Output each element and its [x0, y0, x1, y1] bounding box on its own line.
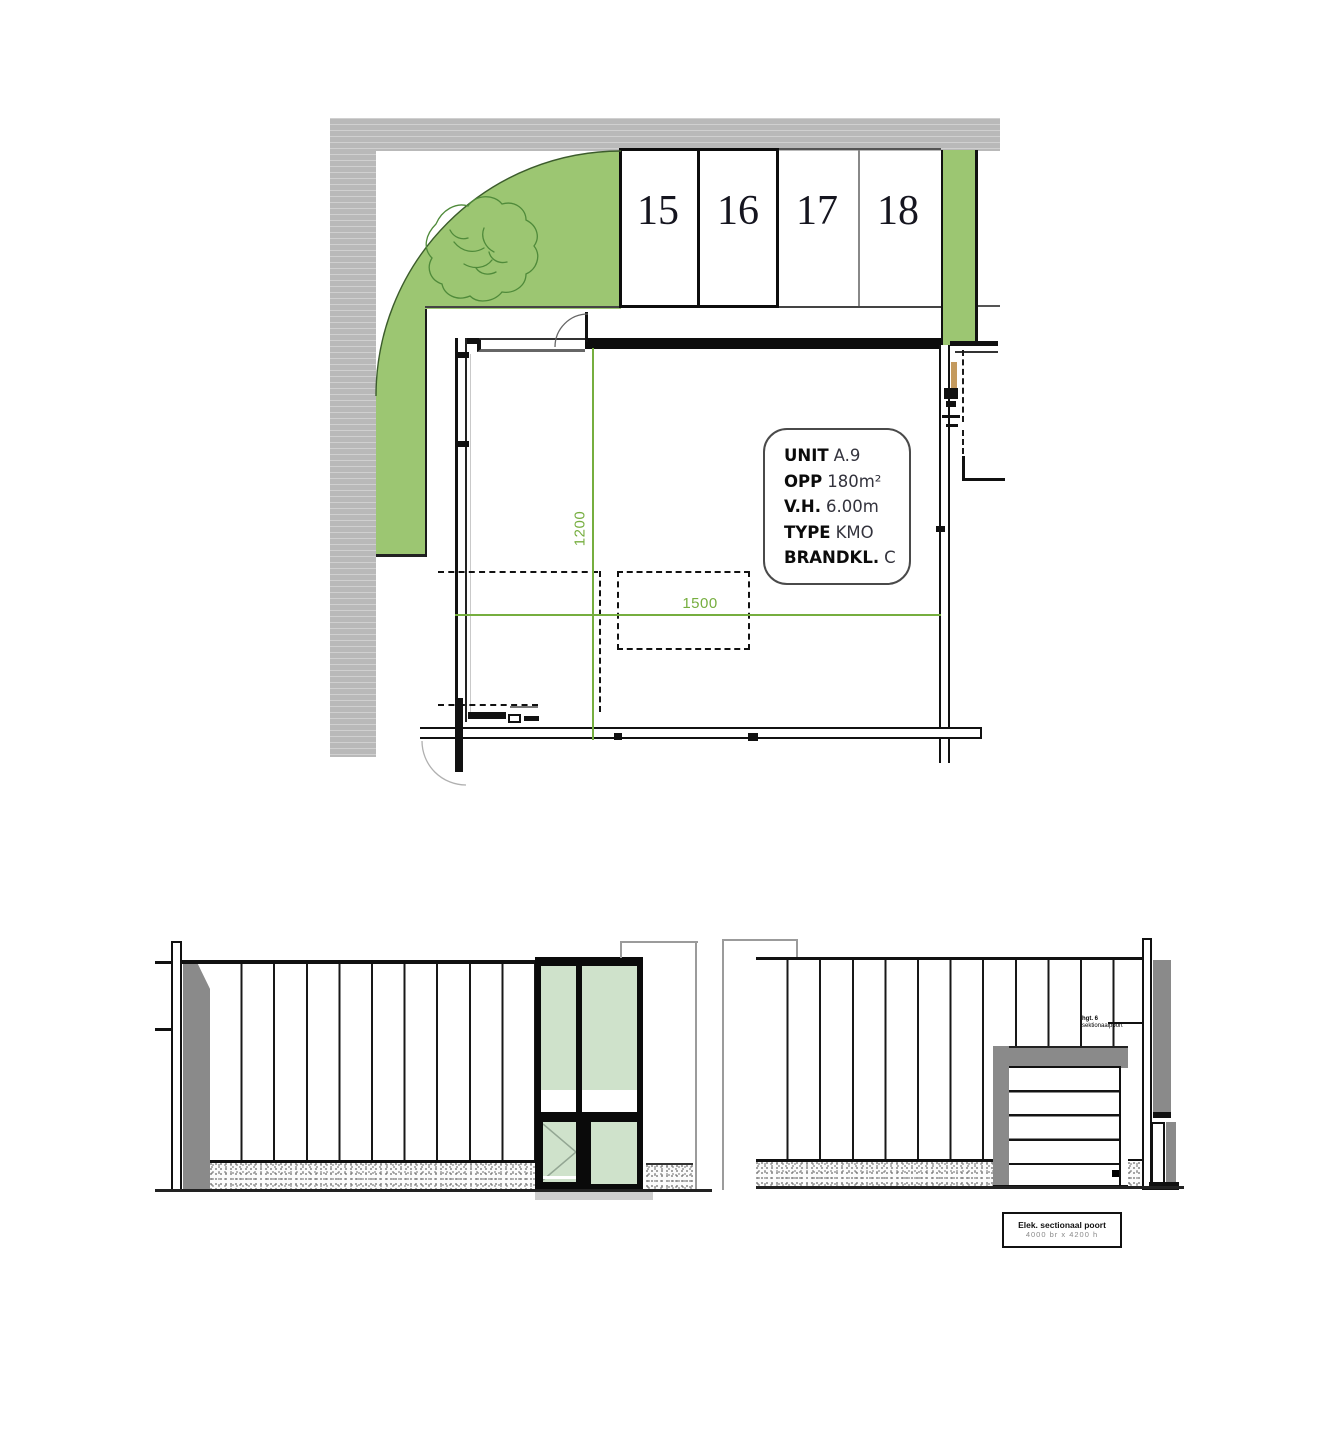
door-annotation-leader: [1108, 1022, 1146, 1024]
dashed-interior-v: [599, 571, 601, 712]
elev2-parapet-outline-h: [722, 939, 798, 941]
info-row-opp: OPP180m²: [784, 469, 909, 495]
info-row-unit: UNITA.9: [784, 443, 909, 469]
wall-bottom-tick-1: [614, 733, 622, 740]
elev1-cladding-panels: [210, 964, 536, 1162]
info-row-vh: V.H.6.00m: [784, 494, 909, 520]
sectional-door-header: [993, 1046, 1128, 1068]
parking-number-16: 16: [700, 188, 776, 234]
bay-glass-top-left: [541, 966, 576, 1090]
wall-left-tick-2: [458, 441, 469, 447]
dimension-label-horizontal: 1500: [676, 595, 724, 612]
elev1-dark-panel: [183, 964, 210, 1190]
wall-left-lower: [455, 698, 463, 772]
parking-number-18: 18: [858, 188, 938, 234]
dashed-line-right-1: [962, 350, 964, 422]
wall-left-inner-line: [470, 354, 471, 716]
wall-top: [584, 338, 941, 349]
dimension-line-vertical: [592, 348, 594, 740]
landscape-green-strip-right: [941, 150, 978, 345]
sectional-door-slats: [1009, 1066, 1121, 1189]
door-leaf-plan: [585, 312, 588, 342]
roller-door-plan: [477, 338, 585, 352]
wall-bottom-tick-2: [748, 733, 758, 741]
parking-top-line-17-18: [779, 148, 941, 150]
sectional-door-handle: [1112, 1170, 1119, 1177]
elev2-gravel-strip: [756, 1162, 996, 1188]
site-line-a: [978, 305, 1000, 307]
detail-l-horizontal: [962, 478, 1005, 481]
bay-door-glass: [543, 1122, 576, 1182]
unit-info-box: UNITA.9 OPP180m² V.H.6.00m TYPEKMO BRAND…: [763, 428, 911, 585]
detail-bracket-1: [944, 388, 958, 399]
dashed-line-right-2: [962, 430, 964, 454]
wall-right-tick: [936, 526, 945, 532]
landscape-green-bottom-edge: [376, 554, 427, 557]
elev1-gravel-strip-2: [646, 1165, 693, 1189]
elev2-parapet-outline-v1: [722, 939, 724, 1190]
elev2-lower-dark-sliver: [1166, 1122, 1176, 1188]
elev2-dark-panel: [1153, 960, 1171, 1117]
bay-transom-right: [582, 1090, 637, 1112]
elev1-parapet-outline-h: [620, 941, 698, 943]
dashed-interior-h1: [438, 571, 598, 573]
elev2-ground-line: [756, 1186, 1184, 1189]
door-hardware-box: [508, 714, 521, 723]
wall-left-tick-1: [458, 352, 469, 358]
wall-bottom: [420, 727, 982, 739]
elev1-parapet-outline-v1: [620, 941, 622, 958]
wall-left: [455, 338, 467, 722]
dashed-interior-h2: [438, 704, 538, 706]
architectural-drawing: 15 16 17 18 1200 1500: [0, 0, 1317, 1440]
door-label-box: Elek. sectionaal poort 4000 br x 4200 h: [1002, 1212, 1122, 1248]
door-label-line1: Elek. sectionaal poort: [1004, 1220, 1120, 1230]
detail-bracket-2: [946, 401, 956, 407]
elev2-lower-frame: [1151, 1122, 1165, 1188]
elev1-gravel-strip: [210, 1163, 536, 1189]
elev2-sectional-door: [993, 1046, 1128, 1189]
parking-number-17: 17: [779, 188, 855, 234]
bay-door-threshold: [543, 1176, 576, 1179]
door-annotation-line2: sektionaalpoort: [1082, 1023, 1130, 1030]
elev1-glazed-bay: [535, 957, 643, 1190]
parking-number-15: 15: [622, 188, 694, 234]
elev2-dark-panel-cap: [1153, 1112, 1171, 1118]
dimension-label-vertical: 1200: [572, 507, 589, 551]
road-band-left: [330, 118, 376, 757]
info-row-brandkl: BRANDKL.C: [784, 545, 909, 571]
bay-transom-left: [541, 1090, 576, 1112]
door-hardware-line: [510, 706, 538, 708]
door-hardware-bar: [524, 716, 539, 721]
bay-door-swing-lines: [543, 1122, 576, 1182]
road-band-top: [330, 118, 1000, 151]
elev1-bay-shadow: [535, 1192, 653, 1200]
elev1-ground-line: [155, 1189, 712, 1192]
door-label-line2: 4000 br x 4200 h: [1004, 1230, 1120, 1239]
bay-glass-top-right: [582, 966, 637, 1090]
elev1-parapet-outline-v2: [695, 941, 697, 1191]
bay-glass-bottom-right: [591, 1122, 637, 1184]
site-line-b: [950, 341, 998, 346]
wall-right: [939, 345, 950, 763]
detail-l-vertical: [962, 456, 965, 480]
door-hardware-leaf: [468, 712, 506, 719]
sectional-door-left-rail: [993, 1046, 1009, 1189]
elev1-corner-post: [171, 941, 182, 1192]
detail-dash-1: [942, 415, 960, 418]
dimension-line-horizontal: [455, 614, 941, 616]
detail-orange-mark: [951, 362, 957, 388]
detail-dash-2: [946, 424, 958, 427]
info-row-type: TYPEKMO: [784, 520, 909, 546]
